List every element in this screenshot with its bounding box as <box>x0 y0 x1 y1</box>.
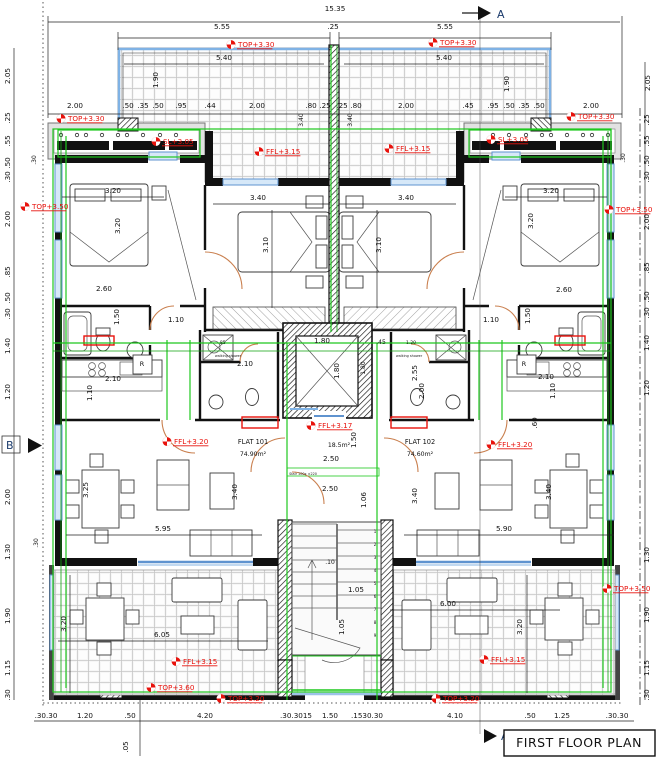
dim-label: 1.15 <box>642 660 651 676</box>
living-left <box>66 454 252 556</box>
dim-label: .80 <box>305 101 317 110</box>
dim-label: 3.20 <box>113 218 122 234</box>
level-annotation: TOP+3.50 <box>613 584 651 593</box>
dim-label: .25 <box>642 114 651 125</box>
dim-label: .30 <box>33 538 40 548</box>
dim-label: 3.20 <box>515 619 524 635</box>
dim-label: 1.30 <box>3 544 12 560</box>
dim-label: .85 <box>218 340 225 346</box>
dim-label: 1.05 <box>337 619 346 635</box>
level-annotation: TOP+3.60 <box>157 683 195 692</box>
floor-plan-svg: 15.355.55.255.555.405.401.901.902.00.50.… <box>0 0 657 758</box>
dim-label: .50 <box>642 155 651 167</box>
dim-label: .30 <box>31 155 38 165</box>
kitchen-left <box>62 355 162 391</box>
dim-label: .50 <box>122 101 134 110</box>
dim-label: 7 <box>374 607 377 612</box>
dim-label: .50 <box>642 291 651 303</box>
dim-label: 1.05 <box>348 585 364 594</box>
level-annotation: FFL+3.20 <box>174 437 209 446</box>
dim-label: 1.10 <box>85 385 94 401</box>
dim-label: 5.55 <box>437 22 453 31</box>
dim-label: 1.20 <box>406 340 416 346</box>
dim-label: 1.90 <box>642 607 651 623</box>
dim-label: .50 <box>3 157 12 169</box>
dim-label: 3.10 <box>261 237 270 253</box>
dim-label: 1.30 <box>642 547 651 563</box>
dim-label: 1.80 <box>314 336 330 345</box>
dim-label: 5.95 <box>155 524 171 533</box>
dim-label: .30 <box>620 153 627 163</box>
flat1-name: FLAT 101 <box>238 438 268 446</box>
level-annotation: FFL+3.15 <box>183 657 217 666</box>
dim-label: 4.20 <box>197 711 213 720</box>
level-annotation: TOP+3.50 <box>615 205 653 214</box>
dim-label: 2.00 <box>67 101 83 110</box>
dim-label: 5.40 <box>436 53 452 62</box>
dim-label: 3 <box>374 555 377 560</box>
dim-label: 6.00 <box>440 599 456 608</box>
section-arrow-top <box>478 6 491 20</box>
dim-label: 3.25 <box>81 482 90 498</box>
stair-step-numbers: 123456789 <box>374 529 377 638</box>
dim-label: 1.40 <box>642 335 651 351</box>
dim-label: .50 <box>124 711 136 720</box>
walking-shower-left: walking shower <box>215 354 242 358</box>
dim-label: 2.05 <box>3 68 12 84</box>
title-block: FIRST FLOOR PLAN <box>504 730 655 756</box>
dim-label: .30 <box>3 308 12 320</box>
flat1-area: 74.90m² <box>240 451 267 458</box>
dim-label: .35 <box>137 101 148 110</box>
dim-label: .30.30 <box>35 711 58 720</box>
dim-label: .35 <box>518 101 529 110</box>
dim-label: .30.30 <box>606 711 629 720</box>
level-annotation: TOP+3.30 <box>237 40 275 49</box>
dim-label: 1.40 <box>3 338 12 354</box>
dim-label: 3.40 <box>410 488 419 504</box>
dim-label: 1.80 <box>332 363 341 379</box>
dim-label: 1.80 <box>360 361 367 375</box>
dim-label: .25 <box>336 101 347 110</box>
dim-label: 8 <box>374 620 377 625</box>
dim-label: 4.10 <box>447 711 463 720</box>
dim-label: 2.10 <box>105 374 121 383</box>
dim-label: .95 <box>175 101 186 110</box>
dim-label: 3.20 <box>526 213 535 229</box>
dim-label: 1.50 <box>112 309 121 325</box>
dim-label: 3.20 <box>543 186 559 195</box>
dim-label: .30 <box>642 171 651 183</box>
stair-note: Stair 100x ±220 <box>289 472 317 476</box>
dim-label: .55 <box>3 135 12 146</box>
dim-label: 3.10 <box>374 237 383 253</box>
level-annotation: SL+3.05 <box>163 137 194 146</box>
dim-label: .30.3015 <box>280 711 312 720</box>
dim-label: .60 <box>530 417 539 429</box>
level-annotation: TOP+3.20 <box>442 694 480 703</box>
level-annotation: FFL+3.20 <box>498 440 533 449</box>
dim-label: 1.25 <box>554 711 570 720</box>
flat2-name: FLAT 102 <box>405 438 435 446</box>
dim-label: 2.55 <box>410 365 419 381</box>
floor-plan-page: 15.355.55.255.555.405.401.901.902.00.50.… <box>0 0 657 758</box>
dim-label: 3.40 <box>398 193 414 202</box>
level-annotation: FFL+3.15 <box>491 655 525 664</box>
dim-label: 5.40 <box>216 53 232 62</box>
dim-label: 1.50 <box>322 711 338 720</box>
dim-label: .25 <box>319 101 330 110</box>
dim-label: .50 <box>524 711 536 720</box>
dim-label: .1530.30 <box>351 711 383 720</box>
dim-label: 2 <box>374 542 377 547</box>
dim-label: 1.10 <box>548 383 557 399</box>
dim-label: 2.00 <box>3 489 12 505</box>
dim-label: .45 <box>462 101 473 110</box>
walking-shower-right: walking shower <box>396 354 423 358</box>
dim-label: .95 <box>487 101 498 110</box>
level-annotation: TOP+3.50 <box>31 202 69 211</box>
dim-label: 3.40 <box>347 113 354 127</box>
dim-label: 2.05 <box>643 75 652 91</box>
dim-label: 5.90 <box>496 524 512 533</box>
fridge-left: R <box>140 360 145 368</box>
dim-label: .50 <box>503 101 515 110</box>
section-arrow-left <box>28 438 42 453</box>
dim-label: 1.15 <box>3 660 12 676</box>
dim-label: 2.50 <box>322 484 338 493</box>
dim-label: 15.35 <box>325 4 346 13</box>
dim-label: .10 <box>325 559 335 566</box>
dim-label: 1.90 <box>502 76 511 92</box>
dim-label: .50 <box>533 101 545 110</box>
dim-label: 1.20 <box>77 711 93 720</box>
drawing-title: FIRST FLOOR PLAN <box>516 735 642 750</box>
dim-label: .25 <box>327 22 338 31</box>
level-annotation: TOP+3.30 <box>577 112 615 121</box>
dim-label: 3.20 <box>105 186 121 195</box>
dim-label: 3.40 <box>250 193 266 202</box>
core-area: 18.5m² <box>328 442 351 449</box>
dim-label: 2.60 <box>96 284 112 293</box>
dim-label: .30 <box>3 689 12 701</box>
dim-label: .44 <box>204 101 216 110</box>
dim-label: .30 <box>642 307 651 319</box>
dim-label: 1.50 <box>523 308 532 324</box>
dim-label: 2.00 <box>398 101 414 110</box>
dim-label: 1 <box>374 529 377 534</box>
level-annotation: TOP+3.30 <box>439 38 477 47</box>
dim-label: 2.60 <box>556 285 572 294</box>
dim-label: 1.10 <box>483 315 499 324</box>
dim-label: 3.20 <box>59 616 68 632</box>
dim-label: 3.40 <box>230 484 239 500</box>
dim-label: 2.10 <box>538 372 554 381</box>
dim-label: 1.90 <box>151 72 160 88</box>
shower-room-left <box>203 335 278 428</box>
dim-label: 5.55 <box>214 22 230 31</box>
dim-label: 2.50 <box>323 454 339 463</box>
dim-label: 1.90 <box>3 608 12 624</box>
bed-mid <box>238 196 330 288</box>
bed-left <box>70 184 196 300</box>
dim-label: 1.20 <box>3 384 12 400</box>
dim-label: 1.06 <box>359 492 368 508</box>
dim-label: 2.00 <box>249 101 265 110</box>
dim-label: .05 <box>121 741 130 752</box>
level-annotation: TOP+3.30 <box>67 114 105 123</box>
dim-label: 2.10 <box>237 359 253 368</box>
section-arrow-bottom <box>484 729 497 743</box>
dim-label: 1.20 <box>642 380 651 396</box>
dim-label: 6 <box>374 594 377 599</box>
fridge-right: R <box>522 360 527 368</box>
dim-label: .55 <box>642 135 651 146</box>
dim-label: 2.00 <box>3 211 12 227</box>
dim-label: 1.50 <box>349 432 358 448</box>
level-annotation: FFL+3.17 <box>318 421 352 430</box>
level-annotation: SL+3.05 <box>498 135 529 144</box>
dim-label: 9 <box>374 633 377 638</box>
dim-label: 2.00 <box>642 214 651 230</box>
dim-label: 5 <box>374 581 377 586</box>
flat2-area: 74.60m² <box>407 451 434 458</box>
dim-label: .45 <box>376 339 386 346</box>
dim-label: 2.00 <box>417 383 426 399</box>
section-label-left: B <box>6 439 14 452</box>
dim-label: .30 <box>642 689 651 701</box>
dim-label: 3.40 <box>544 484 553 500</box>
level-annotation: FFL+3.15 <box>266 147 300 156</box>
dim-label: 1.10 <box>168 315 184 324</box>
level-annotation: FFL+3.15 <box>396 144 430 153</box>
section-label-top: A <box>497 8 505 21</box>
dim-label: .85 <box>3 266 12 277</box>
dim-label: .30 <box>3 171 12 183</box>
dim-label: .80 <box>350 101 362 110</box>
dim-label: .50 <box>152 101 164 110</box>
level-annotation: TOP+3.20 <box>227 694 265 703</box>
dim-label: 6.05 <box>154 630 170 639</box>
dim-label: .85 <box>642 262 651 273</box>
dim-label: 4 <box>374 568 377 573</box>
dim-label: 2.00 <box>583 101 599 110</box>
dim-label: 3.40 <box>298 113 305 127</box>
dim-label: .50 <box>3 292 12 304</box>
dim-label: .25 <box>3 112 12 123</box>
